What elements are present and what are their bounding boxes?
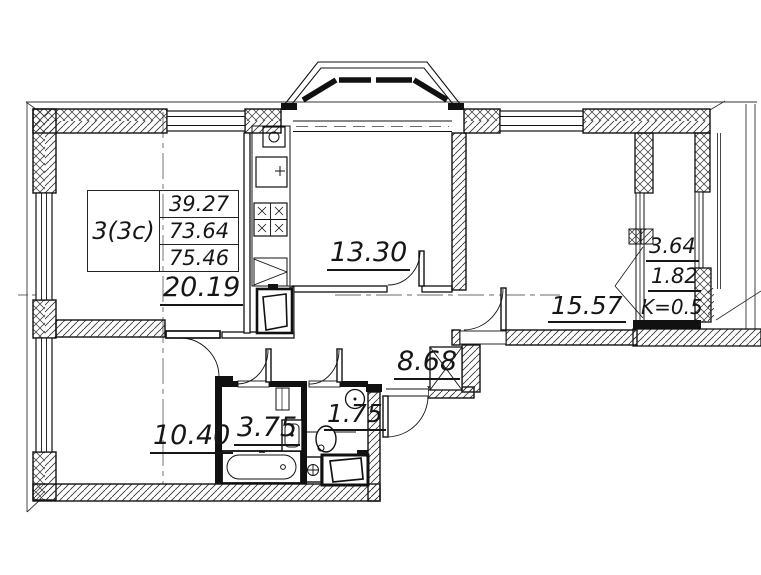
corner-cabinet <box>254 258 287 286</box>
area-label-loggia-counted: 1.82 <box>648 266 701 292</box>
windows <box>36 111 583 452</box>
floor-plan-drawing <box>0 0 761 575</box>
unit-info-box: 3(3c) 39.27 73.64 75.46 <box>87 190 239 272</box>
washing-machine <box>322 450 368 485</box>
unit-living-area: 39.27 <box>160 191 238 218</box>
floor-plan: 3(3c) 39.27 73.64 75.46 20.19 13.30 15.5… <box>0 0 761 575</box>
area-label-living-room: 20.19 <box>160 274 243 306</box>
bathroom-shelf <box>276 388 289 410</box>
entrance-door <box>383 387 428 437</box>
unit-type-label: 3(3c) <box>88 191 160 271</box>
door-bedroom-left <box>166 331 233 385</box>
unit-area: 73.64 <box>160 218 238 245</box>
window-living-top <box>167 111 245 131</box>
door-bathroom <box>238 349 271 384</box>
stove <box>254 203 287 236</box>
area-label-wc: 1.75 <box>324 401 386 431</box>
door-wc <box>309 349 342 384</box>
loggia-coefficient-label: K=0.5 <box>641 297 703 317</box>
area-label-loggia: 3.64 <box>646 236 699 262</box>
area-label-bedroom-right: 15.57 <box>548 293 626 323</box>
area-label-kitchen: 13.30 <box>327 239 410 271</box>
window-bedroom-right-top <box>500 111 583 131</box>
area-label-bedroom-left: 10.40 <box>150 422 233 454</box>
unit-total-area: 75.46 <box>160 245 238 271</box>
kitchen-sink <box>256 157 287 187</box>
area-label-hallway: 8.68 <box>394 348 460 380</box>
kitchen-counter <box>252 126 290 286</box>
window-bedroom-left <box>36 338 52 452</box>
bathtub <box>222 451 301 483</box>
kitchen-fixtures <box>252 126 292 333</box>
refrigerator <box>257 284 292 333</box>
bay-window <box>281 62 464 132</box>
door-bedroom-right <box>460 288 506 344</box>
area-label-bathroom: 3.75 <box>234 414 300 446</box>
window-living-left <box>36 193 52 300</box>
floor-drain <box>305 457 321 482</box>
